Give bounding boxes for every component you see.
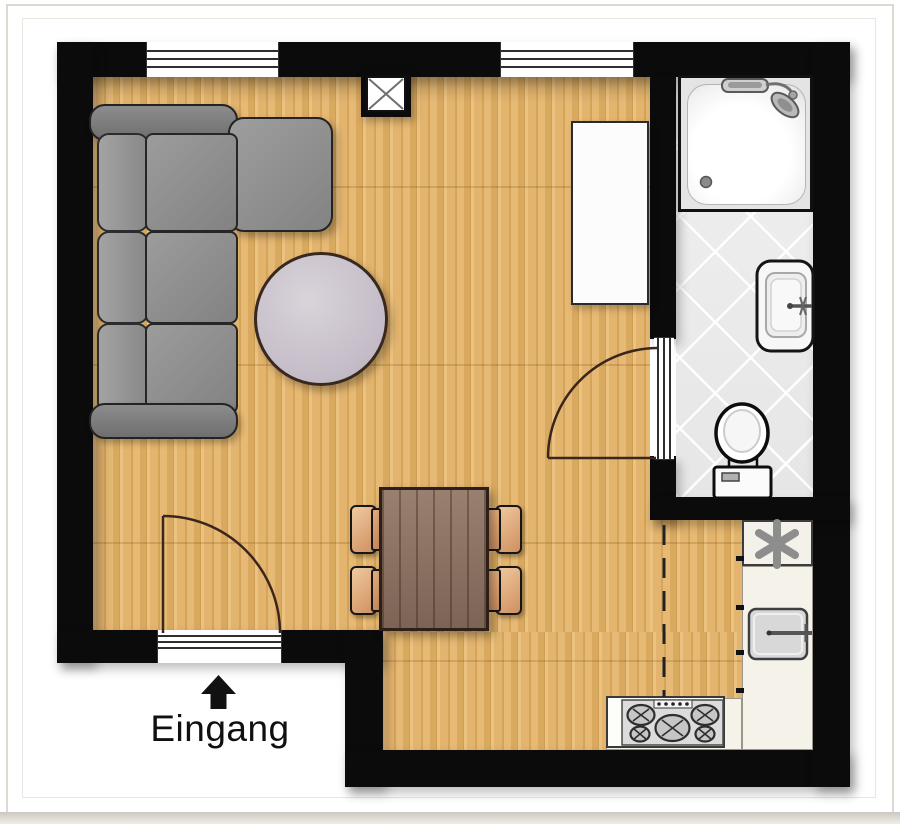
kitchen-counter-right xyxy=(742,566,813,750)
frame-bottom-edge xyxy=(0,812,900,824)
floor-plan: Eingang xyxy=(0,0,900,824)
sofa-chaise xyxy=(228,117,333,232)
wall-shaft xyxy=(366,76,406,112)
sofa-bottom-armrest xyxy=(89,403,238,439)
window-top-left xyxy=(146,42,279,77)
sofa-backrest-2 xyxy=(97,231,149,324)
wall-bottom-right xyxy=(345,750,850,787)
bathroom-door-opening xyxy=(654,337,674,460)
entrance-door-opening xyxy=(157,630,282,663)
refrigerator-marker xyxy=(742,520,813,566)
sofa-seat-2 xyxy=(145,231,238,324)
sofa-seat-1 xyxy=(145,133,238,232)
kitchen-counter-bottom xyxy=(606,698,742,750)
sofa-seat-3 xyxy=(145,323,238,414)
sofa-backrest-1 xyxy=(97,133,149,232)
round-coffee-table xyxy=(254,252,388,386)
shower-tray xyxy=(687,84,806,205)
sideboard xyxy=(571,121,649,305)
dining-table xyxy=(379,487,489,631)
shower xyxy=(678,75,813,212)
entrance-label: Eingang xyxy=(140,708,300,750)
window-top-right xyxy=(500,42,634,77)
wall-bathroom-upper xyxy=(650,77,676,339)
wall-right xyxy=(813,42,850,787)
wall-bathroom-bottom xyxy=(650,497,850,520)
sofa-backrest-3 xyxy=(97,323,149,414)
wall-left xyxy=(57,42,93,663)
